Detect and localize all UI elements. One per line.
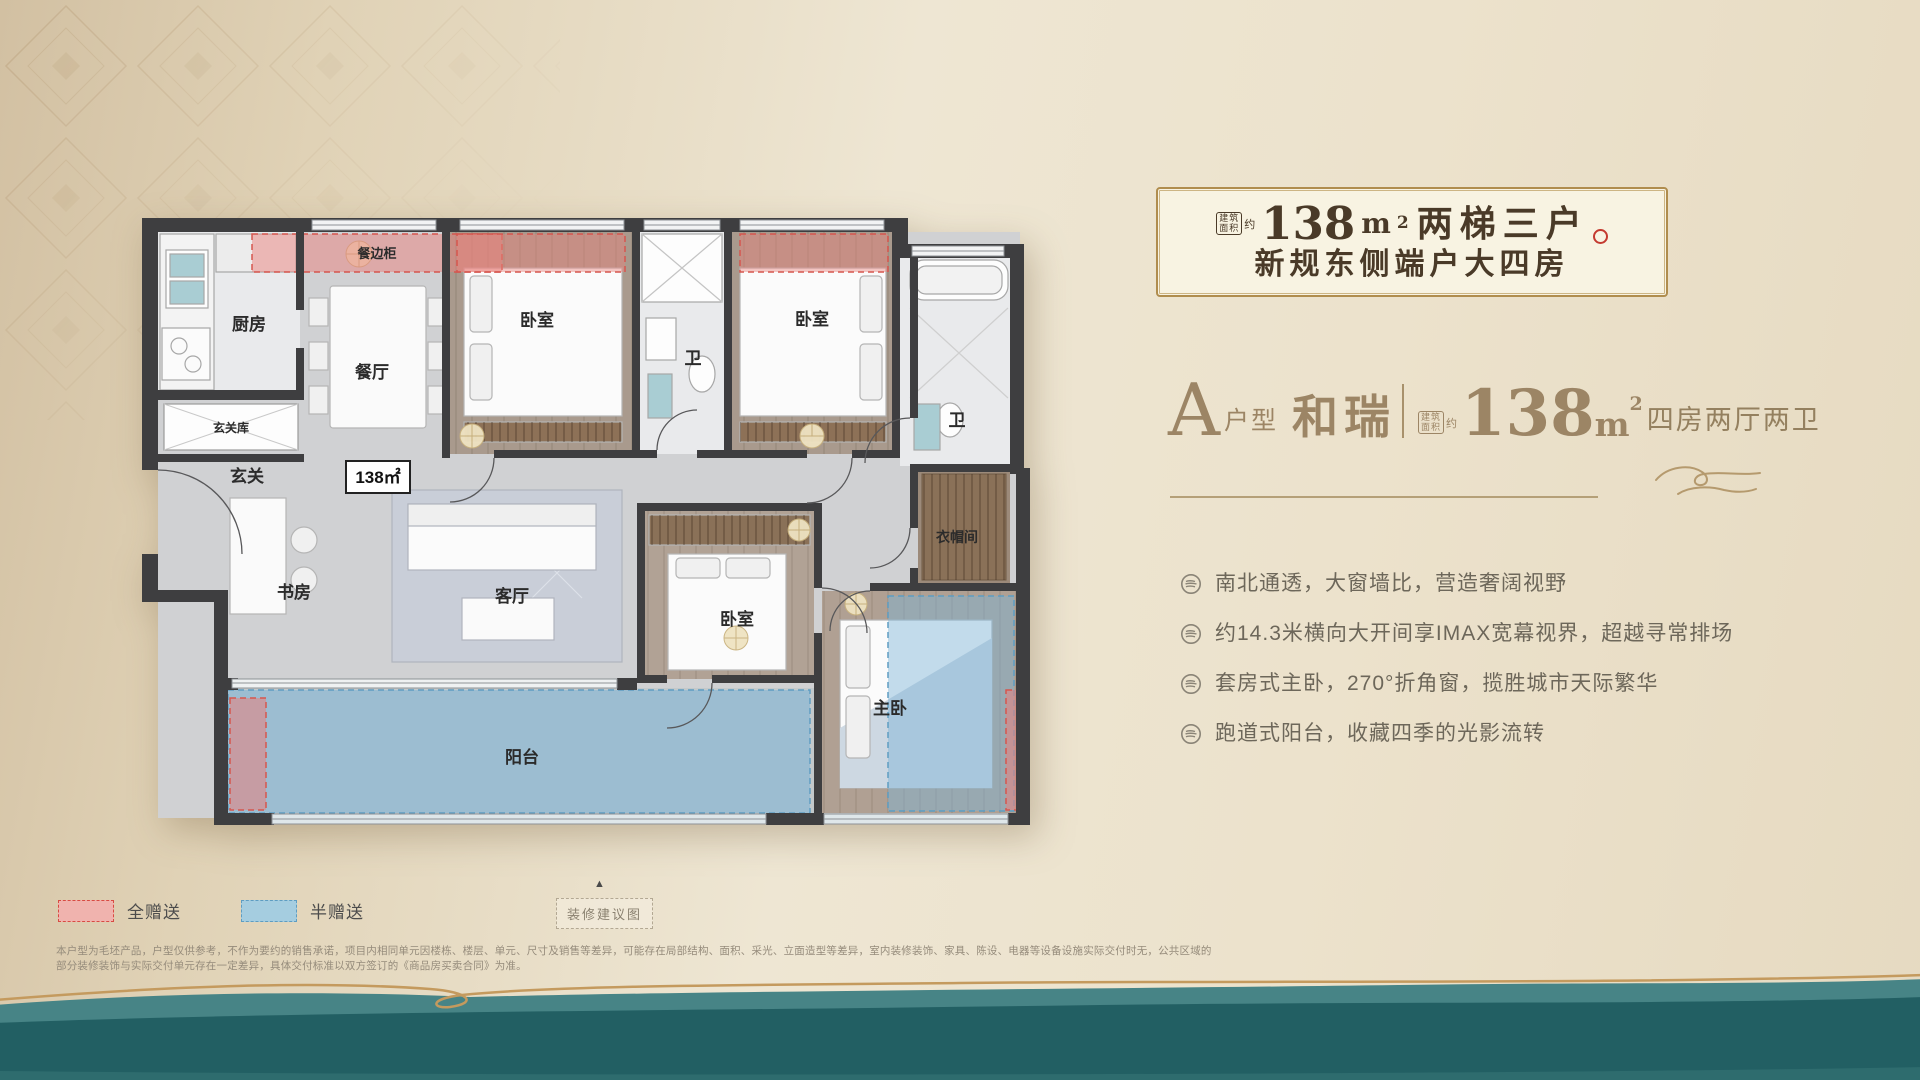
unit-type-label: 户型 [1224, 401, 1278, 437]
room-label-living: 客厅 [494, 586, 529, 606]
spec-area-number: 138 [1461, 388, 1595, 440]
spec-row: A 户型 和瑞 建筑 面积 约 138 m 2 四房两厅两卫 [1168, 381, 1821, 440]
dining-table [309, 286, 447, 428]
feature-item: 约14.3米横向大开间享IMAX宽幕视界，超越寻常排场 [1180, 622, 1733, 646]
section-underline [1170, 496, 1598, 498]
plan-area-label: 138㎡ [355, 467, 400, 487]
area-badge-text2: 面积 [1219, 224, 1239, 233]
cloakroom-wardrobe [922, 474, 1006, 580]
headline-box: 建筑 面积 约 138m2 两梯三户 新规东侧端户大四房 [1156, 187, 1668, 297]
room-label-kitchen: 厨房 [232, 314, 266, 334]
headline-line2: 新规东侧端户大四房 [1255, 248, 1570, 283]
legend-half-gift-swatch [241, 900, 297, 922]
spec-area-unit: m [1595, 410, 1630, 440]
room-label-dining-cabinet: 餐边柜 [356, 246, 396, 261]
room-label-bath-1: 卫 [685, 349, 702, 368]
plan-area-badge: 138㎡ [346, 461, 410, 493]
spec-rooms-text: 四房两厅两卫 [1647, 398, 1821, 437]
feature-item: 跑道式阳台，收藏四季的光影流转 [1180, 722, 1733, 746]
legend-half-gift-label: 半赠送 [310, 898, 364, 923]
bed-2 [740, 268, 886, 442]
legend-full-gift-swatch [58, 900, 114, 922]
spec-area-sup: 2 [1630, 395, 1643, 414]
room-label-study: 书房 [277, 582, 311, 602]
unit-type-letter: A [1168, 381, 1220, 440]
headline-text: 两梯三户 [1417, 206, 1589, 242]
feature-item: 南北通透，大窗墙比，营造奢阔视野 [1180, 572, 1733, 596]
room-label-dining: 餐厅 [355, 362, 389, 382]
feature-list: 南北通透，大窗墙比，营造奢阔视野 约14.3米横向大开间享IMAX宽幕视界，超越… [1180, 572, 1733, 772]
cloud-bullet-icon [1180, 673, 1202, 695]
spec-area-badge-text2: 面积 [1421, 423, 1441, 432]
seal-circle-icon [1593, 229, 1608, 244]
headline-area-sup: 2 [1397, 215, 1409, 232]
unit-name: 和瑞 [1292, 396, 1396, 440]
cloud-bullet-icon [1180, 723, 1202, 745]
feature-text: 约14.3米横向大开间享IMAX宽幕视界，超越寻常排场 [1215, 622, 1733, 646]
divider [1402, 384, 1404, 438]
approx-label: 约 [1244, 216, 1255, 232]
room-label-entry-storage: 玄关库 [213, 420, 249, 435]
living-furniture [392, 490, 622, 662]
spec-approx-label: 约 [1446, 415, 1457, 431]
feature-item: 套房式主卧，270°折角窗，揽胜城市天际繁华 [1180, 672, 1733, 696]
legend-full-gift-label: 全赠送 [127, 898, 181, 923]
cloud-bullet-icon [1180, 573, 1202, 595]
legend: 全赠送 半赠送 [58, 898, 364, 923]
cloud-bullet-icon [1180, 623, 1202, 645]
room-label-entry: 玄关 [230, 466, 264, 486]
room-label-bedroom-3: 卧室 [720, 609, 754, 629]
floor-plan: 餐边柜 厨房 餐厅 玄关库 玄关 卧室 卫 卧室 卫 书房 客厅 卧室 衣帽间 … [112, 168, 1032, 828]
room-label-cloakroom: 衣帽间 [936, 529, 978, 545]
feature-text: 套房式主卧，270°折角窗，揽胜城市天际繁华 [1215, 672, 1658, 696]
decor-suggestion-tag: 装修建议图 [556, 898, 653, 929]
headline-area-unit: m [1361, 210, 1391, 238]
room-label-master: 主卧 [873, 698, 907, 718]
room-label-bedroom-1: 卧室 [520, 310, 554, 330]
room-label-bedroom-2: 卧室 [795, 309, 829, 329]
suggestion-marker-icon: ▲ [594, 878, 605, 890]
feature-text: 跑道式阳台，收藏四季的光影流转 [1215, 722, 1545, 746]
spec-area-badge: 建筑 面积 约 [1418, 411, 1457, 434]
headline-area-number: 138 [1261, 201, 1355, 246]
feature-text: 南北通透，大窗墙比，营造奢阔视野 [1215, 572, 1567, 596]
bottom-wave-decoration [0, 955, 1920, 1080]
room-label-balcony: 阳台 [505, 747, 539, 767]
bed-1 [464, 268, 622, 442]
room-label-bath-2: 卫 [949, 411, 966, 430]
cloud-motif-icon [1652, 462, 1764, 506]
headline-line1: 建筑 面积 约 138m2 两梯三户 [1216, 201, 1607, 246]
area-badge: 建筑 面积 约 [1216, 212, 1255, 235]
